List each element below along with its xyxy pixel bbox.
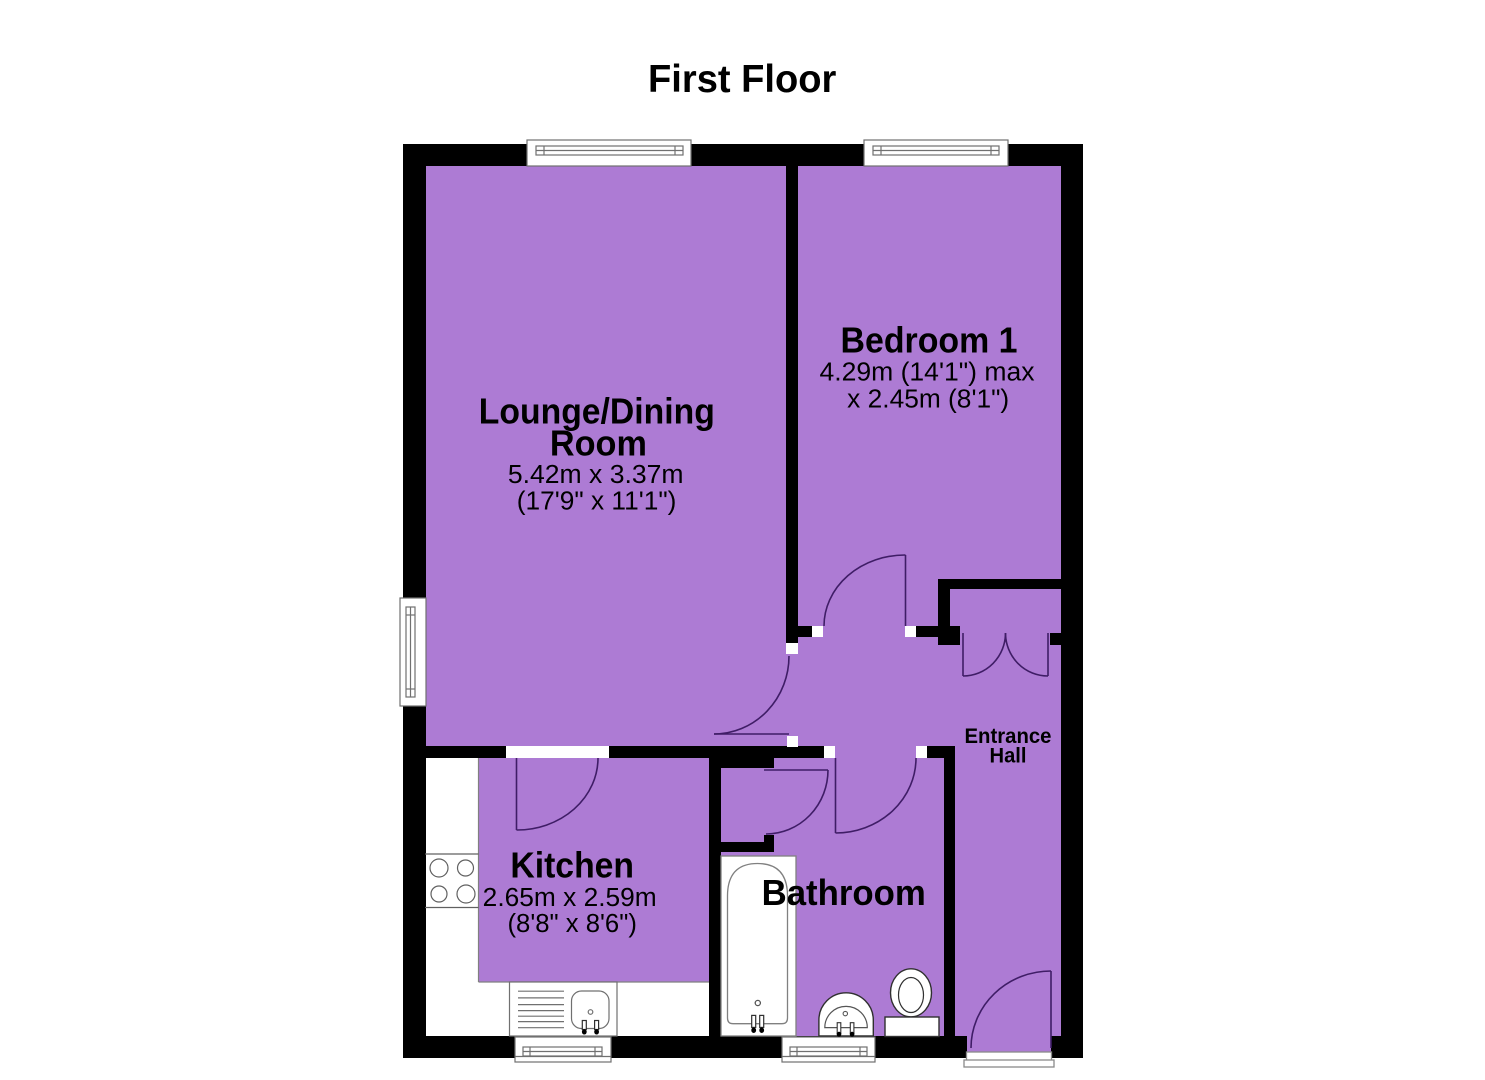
svg-text:Room: Room (550, 422, 647, 463)
svg-text:2.65m x 2.59m: 2.65m x 2.59m (483, 884, 657, 912)
svg-text:Bathroom: Bathroom (762, 872, 926, 913)
svg-text:x 2.45m (8'1"): x 2.45m (8'1") (847, 385, 1009, 413)
svg-text:(8'8" x 8'6"): (8'8" x 8'6") (508, 910, 637, 938)
svg-text:First Floor: First Floor (648, 58, 836, 101)
svg-text:5.42m x 3.37m: 5.42m x 3.37m (508, 461, 684, 489)
svg-text:Kitchen: Kitchen (510, 845, 634, 886)
svg-text:4.29m (14'1") max: 4.29m (14'1") max (820, 359, 1035, 387)
svg-text:Bedroom 1: Bedroom 1 (841, 319, 1018, 360)
svg-text:Hall: Hall (990, 745, 1027, 768)
svg-text:(17'9" x 11'1"): (17'9" x 11'1") (517, 488, 677, 516)
